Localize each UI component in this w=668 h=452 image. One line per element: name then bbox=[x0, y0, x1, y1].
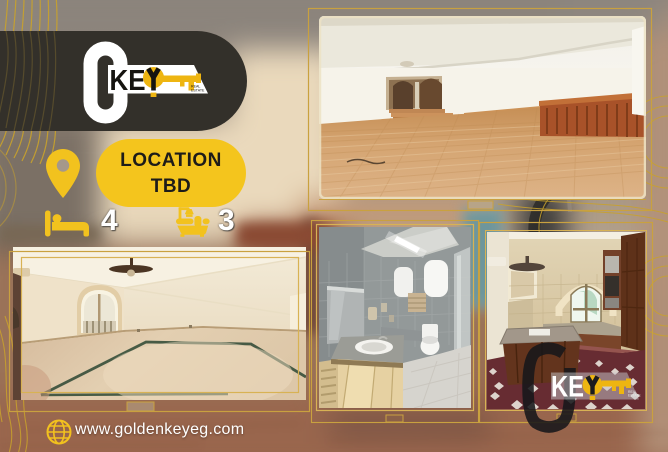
svg-text:KE: KE bbox=[551, 371, 584, 404]
svg-text:ESTATE: ESTATE bbox=[628, 394, 641, 398]
